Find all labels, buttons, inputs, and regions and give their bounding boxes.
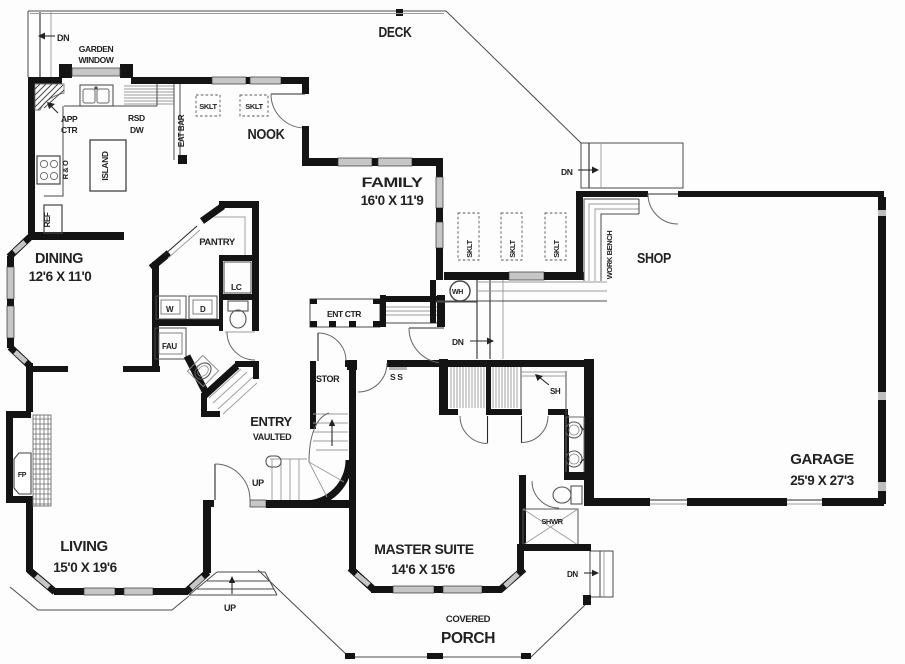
svg-text:LC: LC: [231, 282, 242, 292]
svg-text:SKLT: SKLT: [508, 239, 517, 257]
svg-text:FAU: FAU: [162, 342, 177, 351]
svg-text:UP: UP: [224, 603, 236, 613]
svg-text:APP: APP: [61, 114, 78, 124]
svg-text:SKLT: SKLT: [199, 102, 217, 111]
svg-text:GARDEN: GARDEN: [79, 44, 114, 54]
svg-text:SKLT: SKLT: [245, 102, 263, 111]
svg-text:FAMILY: FAMILY: [362, 175, 424, 190]
svg-text:25'9 X 27'3: 25'9 X 27'3: [790, 473, 854, 488]
svg-text:DW: DW: [130, 125, 145, 135]
svg-text:WORK BENCH: WORK BENCH: [605, 231, 614, 280]
svg-text:12'6 X 11'0: 12'6 X 11'0: [29, 269, 92, 284]
svg-text:ENT CTR: ENT CTR: [327, 309, 361, 319]
svg-text:DN: DN: [561, 167, 573, 177]
svg-text:FP: FP: [18, 472, 27, 479]
svg-text:DN: DN: [57, 33, 69, 43]
svg-text:WINDOW: WINDOW: [79, 55, 115, 65]
svg-text:MASTER SUITE: MASTER SUITE: [374, 541, 473, 557]
svg-text:PANTRY: PANTRY: [199, 237, 236, 248]
svg-text:SKLT: SKLT: [465, 239, 474, 257]
svg-text:ISLAND: ISLAND: [100, 151, 110, 181]
svg-text:ENTRY: ENTRY: [250, 414, 292, 429]
svg-text:SHOP: SHOP: [637, 250, 671, 267]
svg-text:14'6 X 15'6: 14'6 X 15'6: [391, 562, 455, 577]
svg-text:REF: REF: [43, 212, 52, 227]
svg-text:NOOK: NOOK: [248, 127, 286, 143]
svg-text:GARAGE: GARAGE: [790, 451, 854, 468]
svg-text:VAULTED: VAULTED: [253, 432, 292, 442]
svg-text:DN: DN: [567, 570, 578, 579]
svg-text:DN: DN: [452, 337, 464, 347]
svg-text:W: W: [166, 305, 174, 314]
svg-text:S S: S S: [390, 372, 403, 382]
svg-text:RSD: RSD: [128, 113, 145, 123]
svg-text:SH: SH: [550, 387, 561, 396]
svg-text:PORCH: PORCH: [441, 630, 495, 647]
svg-text:STOR: STOR: [316, 374, 340, 384]
svg-text:SKLT: SKLT: [552, 239, 561, 257]
svg-text:WH: WH: [452, 289, 463, 296]
svg-text:CTR: CTR: [61, 125, 78, 135]
svg-text:COVERED: COVERED: [446, 614, 491, 625]
svg-text:SHWR: SHWR: [541, 517, 563, 526]
svg-text:R & O: R & O: [61, 160, 70, 179]
svg-text:16'0 X 11'9: 16'0 X 11'9: [361, 193, 424, 208]
svg-text:LIVING: LIVING: [60, 538, 108, 555]
svg-text:UP: UP: [252, 478, 264, 488]
svg-text:D: D: [200, 305, 206, 314]
svg-text:15'0 X 19'6: 15'0 X 19'6: [53, 560, 117, 575]
svg-text:EAT BAR: EAT BAR: [177, 114, 186, 147]
svg-text:DINING: DINING: [35, 250, 83, 267]
svg-text:DECK: DECK: [379, 24, 412, 41]
